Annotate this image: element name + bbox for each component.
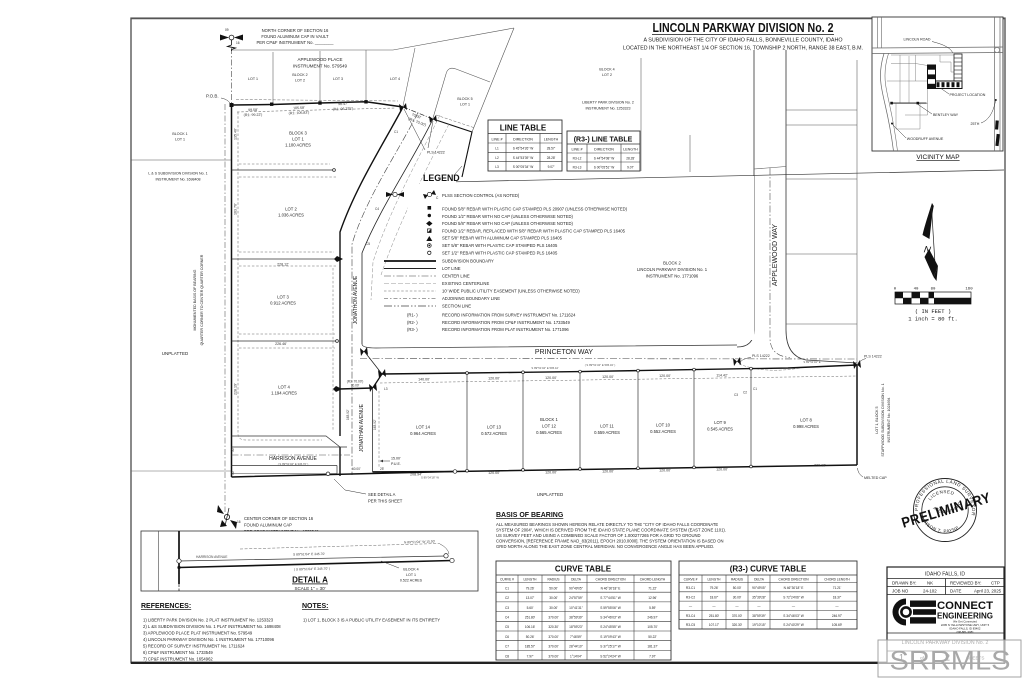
svg-text:FOUND 1/2" REBAR WITH NO CAP (: FOUND 1/2" REBAR WITH NO CAP (UNLESS OTH… bbox=[442, 214, 574, 219]
svg-text:VICINITY MAP: VICINITY MAP bbox=[916, 154, 959, 161]
svg-text:120.00': 120.00' bbox=[602, 375, 614, 379]
svg-text:5.60': 5.60' bbox=[527, 606, 534, 610]
svg-text:L & S SUBDIVISION DIVISION No.: L & S SUBDIVISION DIVISION No. 1 bbox=[148, 172, 207, 176]
svg-text:28.28': 28.28' bbox=[547, 156, 556, 160]
svg-text:LOT 4: LOT 4 bbox=[390, 77, 400, 81]
svg-text:50.00': 50.00' bbox=[549, 586, 558, 590]
svg-text:181.37': 181.37' bbox=[647, 645, 658, 649]
svg-text:79.26': 79.26' bbox=[526, 586, 535, 590]
svg-text:0.552 ACRES: 0.552 ACRES bbox=[650, 429, 676, 434]
svg-text:N 46°30'18" E: N 46°30'18" E bbox=[601, 586, 621, 590]
svg-text:S 89°51'04" E 595.42': S 89°51'04" E 595.42' bbox=[531, 366, 559, 370]
svg-text:LOT 1: LOT 1 bbox=[175, 138, 185, 142]
svg-text:S 44°53'39" W: S 44°53'39" W bbox=[513, 156, 534, 160]
svg-text:EXISTING CENTERLINE: EXISTING CENTERLINE bbox=[442, 281, 489, 286]
svg-text:PLS 14222: PLS 14222 bbox=[427, 151, 445, 155]
svg-text:LOT 2: LOT 2 bbox=[285, 207, 297, 212]
svg-text:BLOCK 1: BLOCK 1 bbox=[172, 132, 187, 136]
svg-text:10' WIDE PUBLIC UTILITY EASEME: 10' WIDE PUBLIC UTILITY EASEMENT (UNLESS… bbox=[442, 289, 580, 294]
svg-text:185.57': 185.57' bbox=[525, 645, 536, 649]
svg-text:LOT 1: LOT 1 bbox=[292, 137, 304, 142]
svg-text:RADIUS: RADIUS bbox=[731, 578, 743, 582]
svg-text:2) L &S SUBDIVISION DIVISION N: 2) L &S SUBDIVISION DIVISION No. 1 PLAT … bbox=[143, 624, 281, 629]
svg-text:0.998 ACRES: 0.998 ACRES bbox=[793, 424, 819, 429]
svg-text:SECTION LINE: SECTION LINE bbox=[442, 304, 471, 309]
svg-text:9.07': 9.07' bbox=[548, 165, 555, 169]
svg-text:BLOCK 5: BLOCK 5 bbox=[457, 97, 472, 101]
svg-text:80: 80 bbox=[931, 288, 936, 292]
svg-text:7) CP&F INSTRUMENT No. 1654962: 7) CP&F INSTRUMENT No. 1654962 bbox=[143, 657, 213, 662]
svg-text:35°39'28": 35°39'28" bbox=[752, 595, 766, 599]
svg-text:19°10'15": 19°10'15" bbox=[752, 623, 766, 627]
svg-text:90°49'05": 90°49'05" bbox=[569, 586, 583, 590]
svg-text:160: 160 bbox=[965, 288, 973, 292]
svg-text:5.59': 5.59' bbox=[649, 606, 656, 610]
svg-text:LINE #: LINE # bbox=[572, 148, 583, 152]
svg-text:PER THIS SHEET: PER THIS SHEET bbox=[368, 499, 403, 504]
svg-text:70.00': 70.00' bbox=[351, 384, 360, 388]
svg-text:LINE #: LINE # bbox=[492, 138, 503, 142]
svg-text:(R2- ): (R2- ) bbox=[407, 320, 418, 325]
svg-text:LOT 8: LOT 8 bbox=[800, 418, 812, 423]
svg-text:PRINCETON WAY: PRINCETON WAY bbox=[535, 349, 594, 356]
svg-text:IDAHO FALLS, ID: IDAHO FALLS, ID bbox=[925, 572, 965, 578]
svg-text:CONVERSION, [REFERENCE FRAME N: CONVERSION, [REFERENCE FRAME NAD_83(2011… bbox=[496, 539, 724, 544]
svg-text:PLSS SECTION CONTROL (AS NOTED: PLSS SECTION CONTROL (AS NOTED) bbox=[442, 193, 520, 198]
svg-text:LINE TABLE: LINE TABLE bbox=[500, 124, 547, 133]
svg-text:HARRISON AVENUE: HARRISON AVENUE bbox=[196, 555, 228, 559]
svg-text:DELTA: DELTA bbox=[571, 578, 582, 582]
svg-text:UNPLATTED: UNPLATTED bbox=[537, 492, 564, 497]
svg-text:GRID NORTH ALONG THE EAST ZONE: GRID NORTH ALONG THE EAST ZONE CENTRAL M… bbox=[496, 544, 714, 549]
svg-text:SET 5/8" REBAR WITH PLASTIC CA: SET 5/8" REBAR WITH PLASTIC CAP STAMPED … bbox=[442, 243, 558, 248]
svg-text:LOT 4: LOT 4 bbox=[278, 385, 290, 390]
svg-text:C5: C5 bbox=[505, 625, 509, 629]
svg-text:LOT 10: LOT 10 bbox=[656, 423, 671, 428]
svg-text:April 23, 2025: April 23, 2025 bbox=[974, 589, 1002, 594]
svg-text:C3: C3 bbox=[734, 393, 738, 397]
svg-text:QUARTER CORNER TO CENTER QUART: QUARTER CORNER TO CENTER QUARTER CORNER bbox=[200, 254, 204, 345]
svg-text:30.00': 30.00' bbox=[549, 596, 558, 600]
svg-text:L3: L3 bbox=[495, 165, 499, 169]
svg-text:135.40': 135.40' bbox=[234, 128, 238, 140]
svg-text:( IN FEET ): ( IN FEET ) bbox=[915, 308, 951, 315]
svg-text:0.559 ACRES: 0.559 ACRES bbox=[594, 430, 620, 435]
svg-text:LOT 3: LOT 3 bbox=[277, 295, 289, 300]
svg-text:BASIS OF BEARING: BASIS OF BEARING bbox=[496, 512, 564, 519]
svg-text:370.00': 370.00' bbox=[548, 635, 559, 639]
svg-text:C6: C6 bbox=[505, 635, 509, 639]
svg-text:LOT 1: LOT 1 bbox=[248, 77, 258, 81]
svg-text:40: 40 bbox=[914, 288, 919, 292]
svg-text:RADIUS: RADIUS bbox=[547, 578, 559, 582]
svg-text:C3: C3 bbox=[505, 606, 509, 610]
svg-text:120.00': 120.00' bbox=[488, 377, 500, 381]
svg-text:C5: C5 bbox=[366, 242, 370, 246]
svg-text:208-881-3081: 208-881-3081 bbox=[956, 630, 974, 634]
svg-text:(R1: 105.83'): (R1: 105.83') bbox=[289, 111, 310, 116]
svg-text:1°14'04": 1°14'04" bbox=[570, 654, 582, 658]
svg-text:(R1: 99.22'): (R1: 99.22') bbox=[244, 113, 263, 117]
svg-text:FOUND ALUMINUM CAP IN VAULT: FOUND ALUMINUM CAP IN VAULT bbox=[261, 34, 329, 39]
svg-text:(R1- ): (R1- ) bbox=[407, 313, 418, 318]
svg-text:MONUMENTED BASIS OF BEARING: MONUMENTED BASIS OF BEARING bbox=[193, 269, 197, 330]
svg-text:370.00': 370.00' bbox=[548, 654, 559, 658]
svg-text:16: 16 bbox=[236, 41, 240, 45]
svg-text:38°59'39": 38°59'39" bbox=[752, 614, 766, 618]
svg-text:CHORD LENGTH: CHORD LENGTH bbox=[824, 578, 850, 582]
svg-text:163.76': 163.76' bbox=[234, 203, 238, 215]
svg-text:120.00': 120.00' bbox=[545, 470, 557, 474]
svg-text:LOT 1: LOT 1 bbox=[460, 103, 470, 107]
svg-text:LOT 9: LOT 9 bbox=[714, 420, 726, 425]
svg-text:50.26': 50.26' bbox=[526, 635, 535, 639]
svg-text:L2: L2 bbox=[495, 156, 499, 160]
svg-text:INSTRUMENT No. 1024694: INSTRUMENT No. 1024694 bbox=[887, 397, 891, 442]
svg-text:A SUBDIVISION OF THE CITY OF I: A SUBDIVISION OF THE CITY OF IDAHO FALLS… bbox=[644, 38, 843, 44]
svg-text:R3-L3: R3-L3 bbox=[573, 166, 582, 170]
svg-text:16: 16 bbox=[237, 520, 241, 524]
svg-text:18.37': 18.37' bbox=[833, 595, 842, 599]
svg-text:13.07': 13.07' bbox=[526, 596, 535, 600]
svg-text:0.572 ACRES: 0.572 ACRES bbox=[481, 431, 507, 436]
svg-text:1.100 ACRES: 1.100 ACRES bbox=[285, 143, 311, 148]
svg-text:CENTER CORNER OF SECTION 16: CENTER CORNER OF SECTION 16 bbox=[244, 516, 314, 521]
svg-text:24-102: 24-102 bbox=[923, 589, 937, 594]
svg-text:NK: NK bbox=[927, 581, 933, 586]
svg-text:S 00°05'34" W: S 00°05'34" W bbox=[513, 165, 534, 169]
svg-text:120.00': 120.00' bbox=[602, 470, 614, 474]
svg-text:JOB NO: JOB NO bbox=[892, 589, 909, 594]
svg-text:S 19°09'43" W: S 19°09'43" W bbox=[600, 635, 621, 639]
svg-text:220.18': 220.18' bbox=[814, 464, 826, 468]
svg-text:251.80': 251.80' bbox=[709, 614, 720, 618]
svg-text:114.42': 114.42' bbox=[716, 373, 728, 377]
svg-text:(R3- ): (R3- ) bbox=[407, 327, 418, 332]
svg-text:12.96': 12.96' bbox=[648, 596, 657, 600]
svg-text:1.194 ACRES: 1.194 ACRES bbox=[271, 391, 297, 396]
svg-text:PER CP&F INSTRUMENT No. ______: PER CP&F INSTRUMENT No. ________ bbox=[257, 40, 335, 45]
svg-text:FOUND ALUMINUM CAP: FOUND ALUMINUM CAP bbox=[244, 523, 292, 528]
svg-text:S 52°24'24" W: S 52°24'24" W bbox=[600, 654, 621, 658]
svg-text:0.545 ACRES: 0.545 ACRES bbox=[707, 427, 733, 432]
svg-text:CHORD LENGTH: CHORD LENGTH bbox=[640, 578, 666, 582]
svg-text:LOT 1, BLOCK 5: LOT 1, BLOCK 5 bbox=[875, 406, 879, 433]
svg-text:RECORD INFORMATION FROM CP&F I: RECORD INFORMATION FROM CP&F INSTRUMENT … bbox=[442, 320, 570, 325]
svg-text:LIBERTY PARK DIVISION No. 2: LIBERTY PARK DIVISION No. 2 bbox=[582, 101, 634, 105]
svg-text:6) CP&F INSTRUMENT No. 1733549: 6) CP&F INSTRUMENT No. 1733549 bbox=[143, 650, 213, 655]
svg-text:1.036 ACRES: 1.036 ACRES bbox=[278, 213, 304, 218]
svg-text:US SURVEY FEET AND USING A COM: US SURVEY FEET AND USING A COMBINED SCAL… bbox=[496, 533, 701, 538]
svg-text:LOT 2: LOT 2 bbox=[295, 79, 305, 83]
svg-text:79.26': 79.26' bbox=[710, 586, 719, 590]
svg-text:S 89°34'18" W: S 89°34'18" W bbox=[421, 476, 439, 480]
svg-text:LENGTH: LENGTH bbox=[708, 578, 722, 582]
svg-text:PLS 14222: PLS 14222 bbox=[864, 355, 882, 359]
svg-text:S 24°40'29" W: S 24°40'29" W bbox=[783, 623, 804, 627]
svg-text:5) RECORD OF SURVEY INSTRUMENT: 5) RECORD OF SURVEY INSTRUMENT No. 17116… bbox=[143, 644, 245, 649]
svg-text:105.70': 105.70' bbox=[647, 625, 658, 629]
svg-text:25TH: 25TH bbox=[971, 122, 980, 126]
svg-text:LENGTH: LENGTH bbox=[623, 148, 638, 152]
svg-text:LOT 13: LOT 13 bbox=[487, 425, 502, 430]
svg-text:0.522 ACRES: 0.522 ACRES bbox=[400, 579, 423, 583]
svg-text:JONATHAN AVENUE: JONATHAN AVENUE bbox=[359, 403, 365, 452]
svg-text:DIRECTION: DIRECTION bbox=[513, 138, 533, 142]
svg-text:C4: C4 bbox=[505, 616, 509, 620]
svg-text:30.00': 30.00' bbox=[549, 606, 558, 610]
svg-text:REVIEWED BY:: REVIEWED BY: bbox=[950, 581, 981, 586]
svg-text:NORTH CORNER OF SECTION 16: NORTH CORNER OF SECTION 16 bbox=[262, 28, 329, 33]
svg-text:S 77°44'51" W: S 77°44'51" W bbox=[600, 596, 621, 600]
svg-text:(R3-) LINE TABLE: (R3-) LINE TABLE bbox=[574, 137, 633, 144]
svg-text:CURVE #: CURVE # bbox=[684, 578, 698, 582]
svg-text:JONATHON AVENUE: JONATHON AVENUE bbox=[353, 275, 359, 324]
svg-text:60.00': 60.00' bbox=[352, 467, 361, 471]
svg-text:7.97': 7.97' bbox=[649, 654, 656, 658]
svg-text:120.00': 120.00' bbox=[659, 374, 671, 378]
svg-text:24°57'59": 24°57'59" bbox=[569, 596, 583, 600]
svg-text:LINCOLN ROAD: LINCOLN ROAD bbox=[904, 38, 931, 42]
svg-text:REFERENCES:: REFERENCES: bbox=[141, 603, 191, 610]
svg-text:107.17': 107.17' bbox=[709, 623, 720, 627]
svg-text:PLS 14222: PLS 14222 bbox=[752, 354, 770, 358]
svg-text:FOUND 5/8" REBAR WITH NO CAP (: FOUND 5/8" REBAR WITH NO CAP (UNLESS OTH… bbox=[442, 221, 574, 226]
svg-text:ALL MEASURED BEARINGS SHOWN HE: ALL MEASURED BEARINGS SHOWN HEREON RELAT… bbox=[496, 522, 718, 527]
svg-text:30.00': 30.00' bbox=[733, 595, 742, 599]
svg-text:C4: C4 bbox=[375, 207, 379, 211]
svg-text:208.94': 208.94' bbox=[410, 473, 422, 477]
svg-text:LOCATED IN THE NORTHEAST 1/4 O: LOCATED IN THE NORTHEAST 1/4 OF SECTION … bbox=[623, 46, 863, 52]
svg-text:CONNECT: CONNECT bbox=[937, 600, 993, 612]
svg-text:0.565 ACRES: 0.565 ACRES bbox=[536, 430, 562, 435]
svg-text:DIRECTION: DIRECTION bbox=[594, 148, 614, 152]
svg-text:L3: L3 bbox=[384, 387, 388, 391]
svg-text:BLOCK 2: BLOCK 2 bbox=[663, 261, 681, 266]
svg-text:C1: C1 bbox=[753, 387, 757, 391]
svg-text:09: 09 bbox=[225, 28, 229, 32]
svg-text:28.57': 28.57' bbox=[547, 147, 556, 151]
svg-text:25': 25' bbox=[380, 467, 385, 471]
svg-text:1) LIBERTY PARK DIVISION No. 2: 1) LIBERTY PARK DIVISION No. 2 PLAT INST… bbox=[143, 618, 274, 623]
svg-text:APPLEWOOD PLACE: APPLEWOOD PLACE bbox=[297, 57, 342, 62]
svg-text:LINCOLN PARKWAY DIVISION No. 1: LINCOLN PARKWAY DIVISION No. 1 bbox=[637, 267, 708, 272]
svg-text:BLOCK 3: BLOCK 3 bbox=[289, 131, 307, 136]
svg-text:SYSTEM OF 2004", WHICH IS DERI: SYSTEM OF 2004", WHICH IS DERIVED FROM T… bbox=[496, 528, 726, 533]
svg-text:246.97': 246.97' bbox=[647, 616, 658, 620]
svg-text:SEE DETAIL A: SEE DETAIL A bbox=[368, 492, 396, 497]
svg-text:28.28': 28.28' bbox=[626, 157, 635, 161]
svg-text:370.00': 370.00' bbox=[732, 614, 743, 618]
svg-text:R3-C4: R3-C4 bbox=[686, 614, 695, 618]
svg-text:STAFFWOOD SUBDIVISION DIVISION: STAFFWOOD SUBDIVISION DIVISION No. 1 bbox=[881, 383, 885, 456]
svg-text:SET 5/8" REBAR WITH ALUMINUM C: SET 5/8" REBAR WITH ALUMINUM CAP STAMPED… bbox=[442, 236, 563, 241]
svg-text:L1: L1 bbox=[495, 147, 499, 151]
svg-text:C2: C2 bbox=[743, 391, 747, 395]
svg-text:1 inch = 80 ft.: 1 inch = 80 ft. bbox=[908, 316, 958, 323]
svg-text:R3-C5: R3-C5 bbox=[686, 623, 695, 627]
svg-text:S 59°55'06" W: S 59°55'06" W bbox=[600, 606, 621, 610]
svg-text:CTP: CTP bbox=[991, 581, 1000, 586]
svg-text:C2: C2 bbox=[505, 596, 509, 600]
svg-text:C8: C8 bbox=[505, 654, 509, 658]
svg-text:FOUND 5/8" REBAR WITH PLASTIC: FOUND 5/8" REBAR WITH PLASTIC CAP STAMPE… bbox=[442, 207, 628, 212]
svg-text:90°49'05": 90°49'05" bbox=[752, 586, 766, 590]
svg-text:BLOCK 1: BLOCK 1 bbox=[540, 417, 558, 422]
svg-text:FOUND 1/2" REBAR, REPLACED WIT: FOUND 1/2" REBAR, REPLACED WITH 5/8" REB… bbox=[442, 228, 626, 233]
svg-text:163.92': 163.92' bbox=[346, 409, 350, 420]
svg-text:C7: C7 bbox=[505, 645, 509, 649]
svg-text:7°46'59": 7°46'59" bbox=[570, 635, 582, 639]
svg-text:INSTRUMENT No. 1698408: INSTRUMENT No. 1698408 bbox=[155, 178, 200, 182]
svg-text:105.58': 105.58' bbox=[293, 106, 305, 110]
svg-text:0.912 ACRES: 0.912 ACRES bbox=[270, 301, 296, 306]
svg-text:120.00': 120.00' bbox=[545, 376, 557, 380]
svg-text:370.00': 370.00' bbox=[548, 616, 559, 620]
svg-text:50.22': 50.22' bbox=[648, 635, 657, 639]
svg-text:( S 89°51'34" E 595.32' ): ( S 89°51'34" E 595.32' ) bbox=[585, 363, 616, 367]
svg-text:9.07': 9.07' bbox=[627, 166, 634, 170]
svg-text:120.00': 120.00' bbox=[488, 471, 500, 475]
svg-text:18°59'23": 18°59'23" bbox=[569, 625, 583, 629]
svg-text:38°59'39": 38°59'39" bbox=[569, 616, 583, 620]
svg-text:INSTRUMENT No. 1253323: INSTRUMENT No. 1253323 bbox=[585, 107, 630, 111]
svg-text:71.21': 71.21' bbox=[833, 586, 842, 590]
svg-text:SRRMLS: SRRMLS bbox=[890, 646, 1011, 676]
svg-text:S 24°45'55" W: S 24°45'55" W bbox=[600, 625, 621, 629]
svg-text:CURVE TABLE: CURVE TABLE bbox=[555, 565, 612, 574]
svg-text:SET 1/2" REBAR WITH PLASTIC CA: SET 1/2" REBAR WITH PLASTIC CAP STAMPED … bbox=[442, 250, 558, 255]
svg-text:BENTLEY WAY: BENTLEY WAY bbox=[933, 113, 959, 117]
svg-text:BLOCK 2: BLOCK 2 bbox=[292, 73, 307, 77]
svg-text:ADJOINING BOUNDARY LINE: ADJOINING BOUNDARY LINE bbox=[442, 296, 500, 301]
svg-text:LOT LINE: LOT LINE bbox=[442, 266, 461, 271]
svg-text:C1: C1 bbox=[505, 586, 509, 590]
svg-text:LENGTH: LENGTH bbox=[524, 578, 538, 582]
svg-text:RECORD INFORMATION FROM PLAT I: RECORD INFORMATION FROM PLAT INSTRUMENT … bbox=[442, 327, 569, 332]
svg-text:7.97': 7.97' bbox=[527, 654, 534, 658]
svg-text:10°41'31": 10°41'31" bbox=[569, 606, 583, 610]
svg-text:S 34°46'03" W: S 34°46'03" W bbox=[783, 614, 804, 618]
svg-text:BLOCK 4: BLOCK 4 bbox=[599, 68, 614, 72]
svg-text:PROJECT LOCATION: PROJECT LOCATION bbox=[950, 93, 986, 97]
svg-text:30': 30' bbox=[231, 447, 235, 452]
svg-text:71.22': 71.22' bbox=[648, 586, 657, 590]
svg-text:28°44'10": 28°44'10" bbox=[569, 645, 583, 649]
svg-text:LOT 11: LOT 11 bbox=[600, 424, 614, 429]
svg-text:DELTA: DELTA bbox=[754, 578, 765, 582]
svg-text:LOT 1: LOT 1 bbox=[406, 573, 416, 577]
svg-text:CHORD DIRECTION: CHORD DIRECTION bbox=[595, 578, 626, 582]
svg-text:251.80': 251.80' bbox=[525, 616, 536, 620]
svg-text:SUBDIVISION BOUNDARY: SUBDIVISION BOUNDARY bbox=[442, 259, 494, 264]
svg-text:0.964 ACRES: 0.964 ACRES bbox=[410, 431, 436, 436]
svg-text:3) APPLEWOOD PLACE PLAT INSTRU: 3) APPLEWOOD PLACE PLAT INSTRUMENT No. 5… bbox=[143, 631, 253, 636]
svg-text:P.U.E.: P.U.E. bbox=[391, 462, 401, 466]
svg-text:320.30': 320.30' bbox=[548, 625, 559, 629]
svg-text:BLOCK 4: BLOCK 4 bbox=[403, 568, 418, 572]
svg-text:30': 30' bbox=[231, 470, 235, 475]
svg-text:N 46°30'18" E: N 46°30'18" E bbox=[784, 586, 804, 590]
svg-text:LEGEND: LEGEND bbox=[423, 173, 460, 183]
svg-text:50.00': 50.00' bbox=[733, 586, 742, 590]
svg-text:15.00': 15.00' bbox=[391, 457, 401, 461]
svg-text:S 44°54'08" W: S 44°54'08" W bbox=[594, 157, 615, 161]
svg-text:DATE: DATE bbox=[950, 589, 961, 594]
svg-text:MELTED CAP: MELTED CAP bbox=[864, 476, 887, 480]
svg-text:226.46': 226.46' bbox=[275, 342, 287, 346]
svg-text:CENTER LINE: CENTER LINE bbox=[442, 274, 470, 279]
svg-text:NOTES:: NOTES: bbox=[302, 603, 328, 610]
svg-text:C1: C1 bbox=[394, 130, 398, 134]
svg-text:LOT 3: LOT 3 bbox=[333, 77, 343, 81]
svg-text:INSTRUMENT No. 579549: INSTRUMENT No. 579549 bbox=[293, 64, 347, 69]
svg-text:4) LINCOLN PARKWAY DIVISION No: 4) LINCOLN PARKWAY DIVISION No. 1 INSTRU… bbox=[143, 637, 275, 642]
svg-text:LENGTH: LENGTH bbox=[544, 138, 559, 142]
svg-text:UNPLATTED: UNPLATTED bbox=[162, 351, 189, 356]
svg-text:RECORD INFORMATION FROM SURVEY: RECORD INFORMATION FROM SURVEY INSTRUMEN… bbox=[442, 313, 576, 318]
svg-text:DETAIL A: DETAIL A bbox=[292, 576, 328, 585]
svg-text:WOODRUFF AVENUE: WOODRUFF AVENUE bbox=[907, 137, 944, 141]
svg-text:LOT 14: LOT 14 bbox=[416, 425, 431, 430]
svg-text:R3-L2: R3-L2 bbox=[573, 157, 582, 161]
svg-text:246.97': 246.97' bbox=[832, 614, 843, 618]
svg-text:(R3-) CURVE TABLE: (R3-) CURVE TABLE bbox=[730, 565, 807, 574]
svg-text:S 89°51'04" E: S 89°51'04" E bbox=[803, 360, 820, 364]
svg-text:228.19': 228.19' bbox=[234, 383, 238, 395]
svg-text:140.00': 140.00' bbox=[418, 378, 430, 382]
svg-text:1) LOT 1, BLOCK 3 IS A PUBLIC: 1) LOT 1, BLOCK 3 IS A PUBLIC UTILITY EA… bbox=[303, 618, 440, 623]
svg-text:LOT 12: LOT 12 bbox=[542, 424, 557, 429]
svg-text:S 72°24'06" W: S 72°24'06" W bbox=[783, 595, 804, 599]
svg-text:S 45°54'26" W: S 45°54'26" W bbox=[513, 147, 534, 151]
svg-text:INSTRUMENT No. 1771096: INSTRUMENT No. 1771096 bbox=[646, 274, 699, 279]
svg-text:R3-C1: R3-C1 bbox=[686, 586, 695, 590]
svg-text:163.92': 163.92' bbox=[373, 419, 377, 430]
svg-text:CURVE #: CURVE # bbox=[500, 578, 514, 582]
svg-text:APPLEWOOD WAY: APPLEWOOD WAY bbox=[772, 224, 779, 287]
svg-text:R3-C2: R3-C2 bbox=[686, 595, 695, 599]
svg-text:SCALE 1" = 30': SCALE 1" = 30' bbox=[294, 586, 325, 591]
svg-text:LOT 2: LOT 2 bbox=[602, 73, 612, 77]
svg-text:18.67': 18.67' bbox=[710, 595, 719, 599]
svg-text:S 34°46'03" W: S 34°46'03" W bbox=[600, 616, 621, 620]
svg-text:105.69': 105.69' bbox=[832, 623, 843, 627]
svg-text:CHORD DIRECTION: CHORD DIRECTION bbox=[778, 578, 809, 582]
svg-text:DRAWN BY:: DRAWN BY: bbox=[892, 581, 916, 586]
svg-text:370.00': 370.00' bbox=[548, 645, 559, 649]
svg-text:120.00': 120.00' bbox=[659, 469, 671, 473]
svg-text:106.16': 106.16' bbox=[525, 625, 536, 629]
svg-text:96.47': 96.47' bbox=[338, 102, 348, 106]
svg-text:120.00': 120.00' bbox=[716, 468, 728, 472]
svg-text:P.O.B.: P.O.B. bbox=[206, 94, 219, 99]
svg-text:S 89°51'04" E 345.70': S 89°51'04" E 345.70' bbox=[293, 552, 325, 557]
svg-text:320.30': 320.30' bbox=[732, 623, 743, 627]
svg-text:LINCOLN PARKWAY DIVISION No. 2: LINCOLN PARKWAY DIVISION No. 2 bbox=[653, 20, 834, 35]
svg-text:S 00°05'51" W: S 00°05'51" W bbox=[594, 166, 615, 170]
svg-text:S 37°25'17" W: S 37°25'17" W bbox=[600, 645, 621, 649]
